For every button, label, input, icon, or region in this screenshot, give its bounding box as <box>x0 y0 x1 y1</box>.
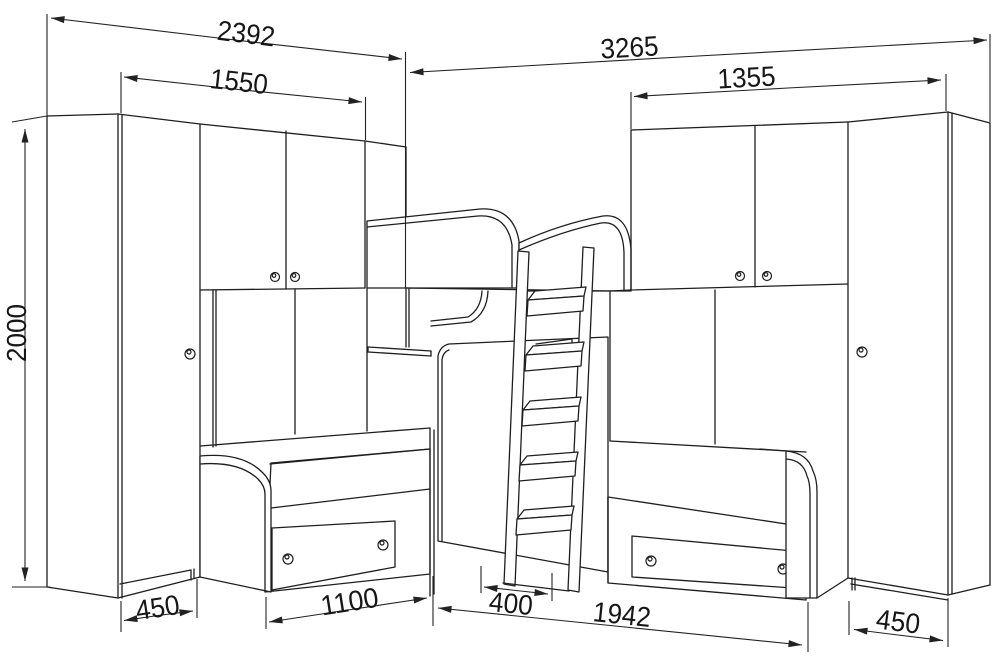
door-handle <box>271 273 280 282</box>
dimension-label-left-cabinet-width: 1550 <box>209 63 270 100</box>
dimension-label-right-wardrobe-width: 450 <box>874 603 922 639</box>
dimension-right-wardrobe-width: 450 <box>854 603 943 640</box>
wall-shelf <box>368 347 431 356</box>
bed-corner-post <box>786 451 817 598</box>
dimension-label-overall-left-width: 2392 <box>215 15 276 53</box>
left-bed <box>200 428 434 596</box>
door-handle <box>857 347 867 357</box>
right-bed <box>438 337 848 600</box>
dimension-label-right-bed-front: 1942 <box>592 596 653 633</box>
dimension-annotations: 2392 3265 1550 1355 2000 <box>1 14 990 652</box>
dimension-right-cabinet-width: 1355 <box>634 60 941 96</box>
door-handle <box>291 273 300 282</box>
corner-desk-panel <box>431 291 488 326</box>
door-handle <box>736 272 745 281</box>
dimension-overall-right-width: 3265 <box>410 30 987 72</box>
dimension-left-wardrobe-width: 450 <box>124 589 193 626</box>
dimension-label-right-cabinet-width: 1355 <box>717 60 777 94</box>
dimension-label-overall-right-width: 3265 <box>600 30 660 64</box>
bed-headboard-post <box>200 455 271 592</box>
ladder-step <box>525 342 584 371</box>
dimension-label-left-wardrobe-width: 450 <box>134 589 182 626</box>
dimension-left-cabinet-width: 1550 <box>124 63 362 102</box>
ladder-step <box>522 397 581 426</box>
right-wardrobe <box>848 112 990 600</box>
furniture-drawing-page: 2392 3265 1550 1355 2000 <box>0 0 997 659</box>
ladder-step <box>519 452 578 481</box>
dimension-overall-height: 2000 <box>1 129 32 581</box>
left-wardrobe <box>47 114 200 598</box>
door-handle <box>763 272 772 281</box>
ladder-step <box>527 287 586 316</box>
ladder-step <box>516 506 574 535</box>
dimension-label-overall-height: 2000 <box>1 304 32 362</box>
door-handle <box>185 349 195 359</box>
furniture-dimension-drawing: 2392 3265 1550 1355 2000 <box>0 0 997 659</box>
right-upper-cabinet <box>610 122 848 291</box>
dimension-label-left-bed-front: 1100 <box>318 582 380 622</box>
dimension-overall-left-width: 2392 <box>51 15 402 59</box>
